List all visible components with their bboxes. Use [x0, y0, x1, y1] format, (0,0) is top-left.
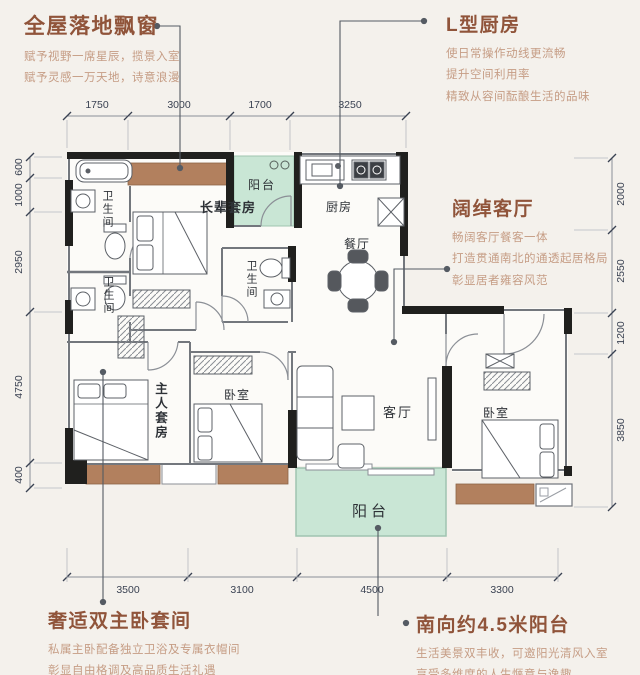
dim-left: 600 1000 2950 4750 400 — [13, 153, 62, 492]
dim-label: 1750 — [85, 99, 109, 111]
annotation-title: 阔绰客厅 — [452, 194, 628, 221]
annotation-balcony: 南向约4.5米阳台 生活美景双丰收，可邀阳光清风入室 享受多维度的人生惬意与逸趣 — [416, 610, 608, 675]
annotation-kitchen: L型厨房 使日常操作动线更流畅 提升空间利用率 精致从容间酝酿生活的品味 — [446, 10, 590, 108]
tv-console — [428, 378, 436, 440]
ac-platform — [536, 484, 572, 506]
room-label-bath2: 卫生间 — [100, 276, 116, 315]
annotation-title: 全屋落地飘窗 — [24, 10, 180, 40]
annotation-line: 使日常操作动线更流畅 — [446, 44, 590, 65]
dim-label: 2950 — [13, 250, 25, 274]
room-label-dining: 餐厅 — [344, 235, 370, 252]
dim-label: 3250 — [338, 99, 362, 111]
dim-label: 600 — [13, 158, 25, 176]
annotation-bay-window: 全屋落地飘窗 赋予视野一席星辰，揽景入室 赋予灵感一万天地，诗意浪漫 — [24, 10, 180, 90]
annotation-living: 阔绰客厅 畅阔客厅餐客一体 打造贯通南北的通透起居格局 彰显居者雍容风范 — [452, 194, 628, 292]
annotation-line: 精致从容间酝酿生活的品味 — [446, 87, 590, 108]
annotation-line: 赋予视野一席星辰，揽景入室 — [24, 47, 180, 68]
annotation-title: 奢适双主卧套间 — [48, 606, 240, 633]
dim-label: 1000 — [13, 183, 25, 207]
room-label-bath1: 卫生间 — [99, 190, 115, 229]
window-seat — [162, 464, 216, 484]
dim-label: 1700 — [248, 99, 272, 111]
room-label-kitchen: 厨房 — [326, 198, 352, 215]
dim-label: 1200 — [615, 321, 627, 345]
dim-label: 3500 — [116, 584, 140, 596]
sofa — [297, 366, 333, 460]
annotation-title: 南向约4.5米阳台 — [416, 610, 608, 637]
dim-label: 3300 — [490, 584, 514, 596]
dim-label: 3100 — [230, 584, 254, 596]
bedroom-left-wardrobe — [194, 356, 252, 374]
dim-label: 4750 — [13, 375, 25, 399]
annotation-line: 私属主卧配备独立卫浴及专属衣帽间 — [48, 640, 240, 661]
annotation-line: 彰显居者雍容风范 — [452, 271, 628, 292]
annotation-line: 享受多维度的人生惬意与逸趣 — [416, 665, 608, 675]
dim-label: 400 — [13, 466, 25, 484]
bedroom-right-bed — [482, 420, 558, 478]
kitchen-counter — [300, 156, 400, 184]
annotation-line: 提升空间利用率 — [446, 65, 590, 86]
elder-wardrobe — [133, 290, 190, 308]
room-label-living: 客厅 — [383, 402, 413, 421]
armchair — [338, 444, 364, 468]
bay-window-south-3 — [456, 484, 534, 504]
master-bed — [74, 380, 148, 460]
annotation-master: 奢适双主卧套间 私属主卧配备独立卫浴及专属衣帽间 彰显自由格调及高品质生活礼遇 — [48, 606, 240, 675]
annotation-line: 畅阔客厅餐客一体 — [452, 228, 628, 249]
bathtub — [76, 160, 132, 182]
annotation-line: 赋予灵感一万天地，诗意浪漫 — [24, 68, 180, 89]
sliding-door — [368, 469, 434, 475]
bay-window-south-2 — [218, 464, 288, 484]
room-label-bath3: 卫生间 — [243, 260, 259, 299]
annotation-title: L型厨房 — [446, 10, 590, 37]
shaft — [378, 198, 404, 226]
dim-bottom: 3500 3100 4500 3300 — [63, 548, 562, 596]
annotation-line: 打造贯通南北的通透起居格局 — [452, 249, 628, 270]
room-label-balcony-top: 阳台 — [248, 176, 276, 193]
elder-suite-bed — [133, 212, 207, 274]
dim-top: 1750 3000 1700 3250 — [63, 99, 410, 150]
room-label-bedroom-right: 卧室 — [483, 404, 509, 421]
annotation-line: 彰显自由格调及高品质生活礼遇 — [48, 661, 240, 675]
coffee-table — [342, 396, 374, 430]
dim-label: 3000 — [167, 99, 191, 111]
room-label-master-suite: 主人套房 — [151, 382, 170, 440]
bedroom-right-closet — [486, 354, 514, 368]
room-label-elder-suite: 长辈套房 — [200, 197, 256, 216]
bedroom-right-wardrobe — [484, 372, 530, 390]
bedroom-left-bed — [194, 404, 262, 462]
room-label-bedroom-left: 卧室 — [224, 386, 250, 403]
annotation-line: 生活美景双丰收，可邀阳光清风入室 — [416, 644, 608, 665]
dim-label: 4500 — [360, 584, 384, 596]
floorplan-page: 1750 3000 1700 3250 3500 3100 4500 3300 — [0, 0, 640, 675]
bay-window-south-1 — [86, 464, 160, 484]
dim-label: 3850 — [615, 418, 627, 442]
room-label-balcony-bottom: 阳台 — [352, 500, 390, 521]
master-wardrobe — [118, 316, 144, 358]
